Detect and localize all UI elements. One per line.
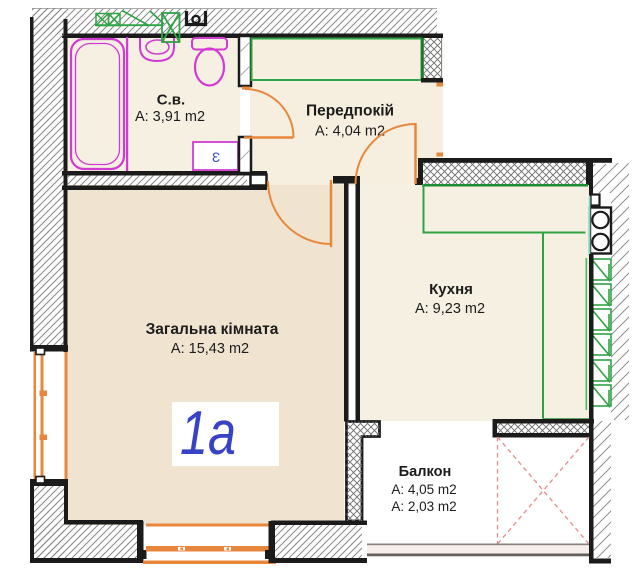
svg-text:A: 4,05 m2: A: 4,05 m2: [391, 482, 456, 497]
svg-text:С.в.: С.в.: [157, 92, 185, 109]
svg-text:A: 2,03 m2: A: 2,03 m2: [391, 499, 456, 514]
svg-text:A: 15,43 m2: A: 15,43 m2: [171, 341, 249, 357]
svg-text:Балкон: Балкон: [399, 464, 452, 480]
svg-text:Кухня: Кухня: [429, 281, 473, 298]
svg-text:A: 3,91 m2: A: 3,91 m2: [135, 109, 205, 125]
svg-text:Загальна кімната: Загальна кімната: [146, 321, 279, 338]
svg-text:З: З: [212, 150, 220, 165]
svg-text:A: 4,04 m2: A: 4,04 m2: [315, 124, 385, 140]
svg-text:1a: 1a: [180, 399, 236, 468]
svg-text:Передпокій: Передпокій: [306, 103, 394, 120]
svg-text:A: 9,23 m2: A: 9,23 m2: [415, 301, 485, 317]
